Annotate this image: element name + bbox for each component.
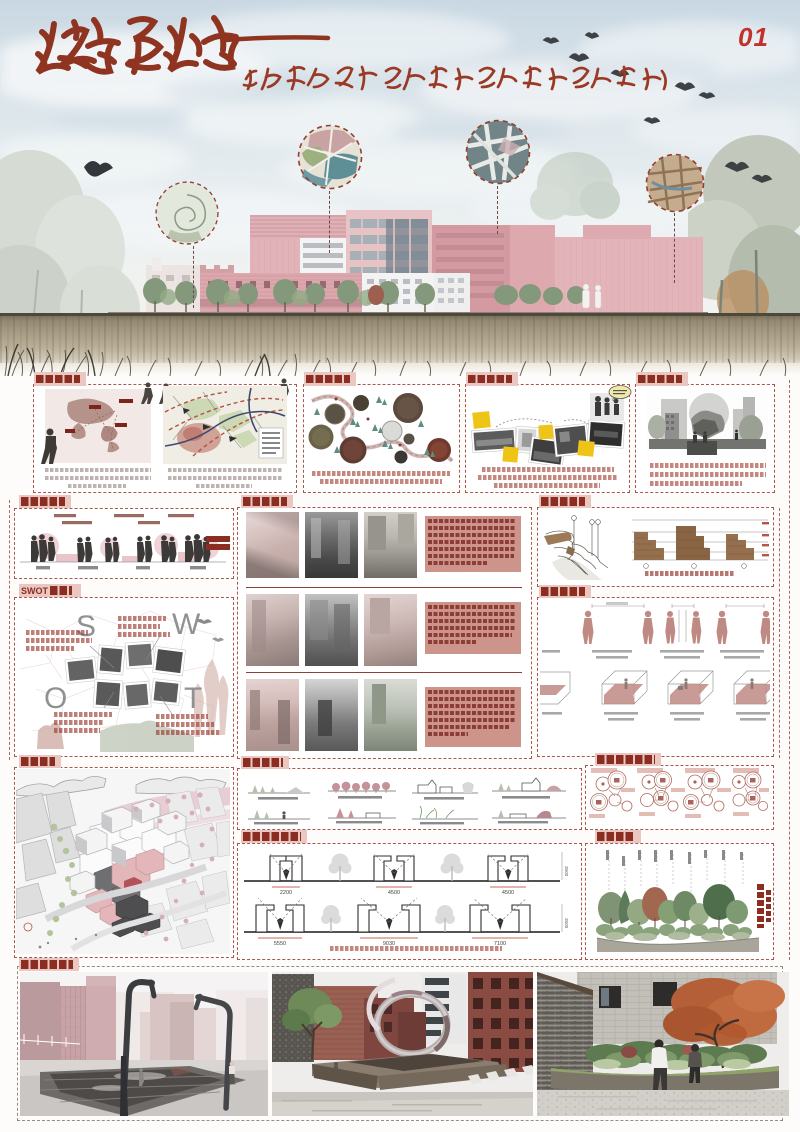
svg-text:4500: 4500 [502, 890, 514, 896]
svg-text:4500: 4500 [388, 890, 400, 896]
svg-text:3500: 3500 [564, 866, 569, 877]
svg-text:3500: 3500 [564, 918, 569, 929]
svg-text:5550: 5550 [274, 941, 286, 947]
svg-text:2200: 2200 [280, 890, 292, 896]
